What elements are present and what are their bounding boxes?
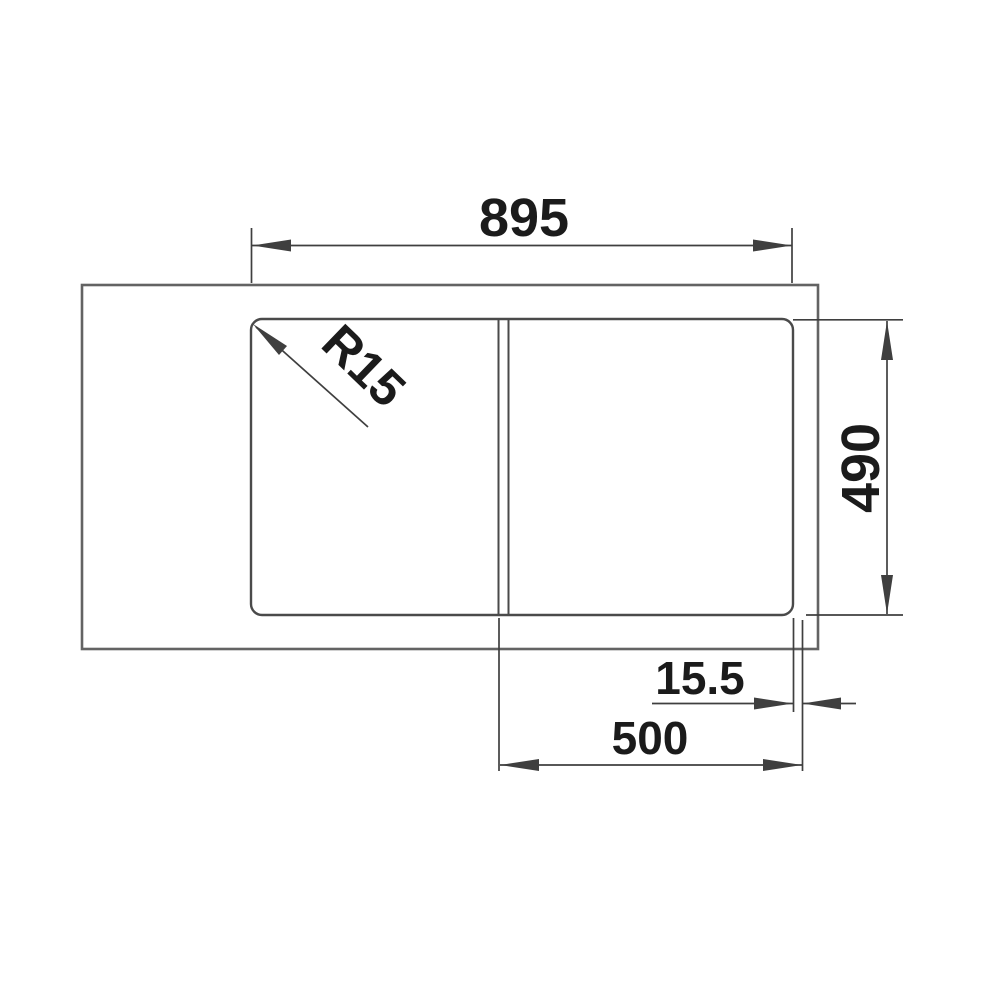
edge-offset-label: 15.5 [655,652,745,704]
arrowhead-down-icon [881,575,893,614]
dimension-overall-width: 895 [252,188,793,283]
arrowhead-right-icon [754,698,793,710]
bowl-depth-label: 490 [831,423,891,513]
arrowhead-left-icon [252,240,291,252]
arrowhead-up-icon [881,321,893,360]
sink-outline-group [82,285,818,649]
arrowhead-left-icon [803,698,842,710]
arrowhead-upleft-icon [253,324,287,355]
arrowhead-left-icon [500,759,539,771]
bowl-width-label: 500 [612,712,689,764]
dimension-bowl-width: 500 [499,618,803,771]
corner-radius-label: R15 [311,314,416,418]
drawing-canvas: 895 490 15.5 500 [0,0,992,992]
overall-width-label: 895 [479,188,569,248]
sink-outer-outline [82,285,818,649]
arrowhead-right-icon [753,240,792,252]
arrowhead-right-icon [763,759,802,771]
callout-corner-radius: R15 [253,314,416,427]
dimension-bowl-depth: 490 [793,320,903,615]
sink-technical-drawing: 895 490 15.5 500 [0,0,992,992]
dimension-edge-offset: 15.5 [652,618,856,712]
